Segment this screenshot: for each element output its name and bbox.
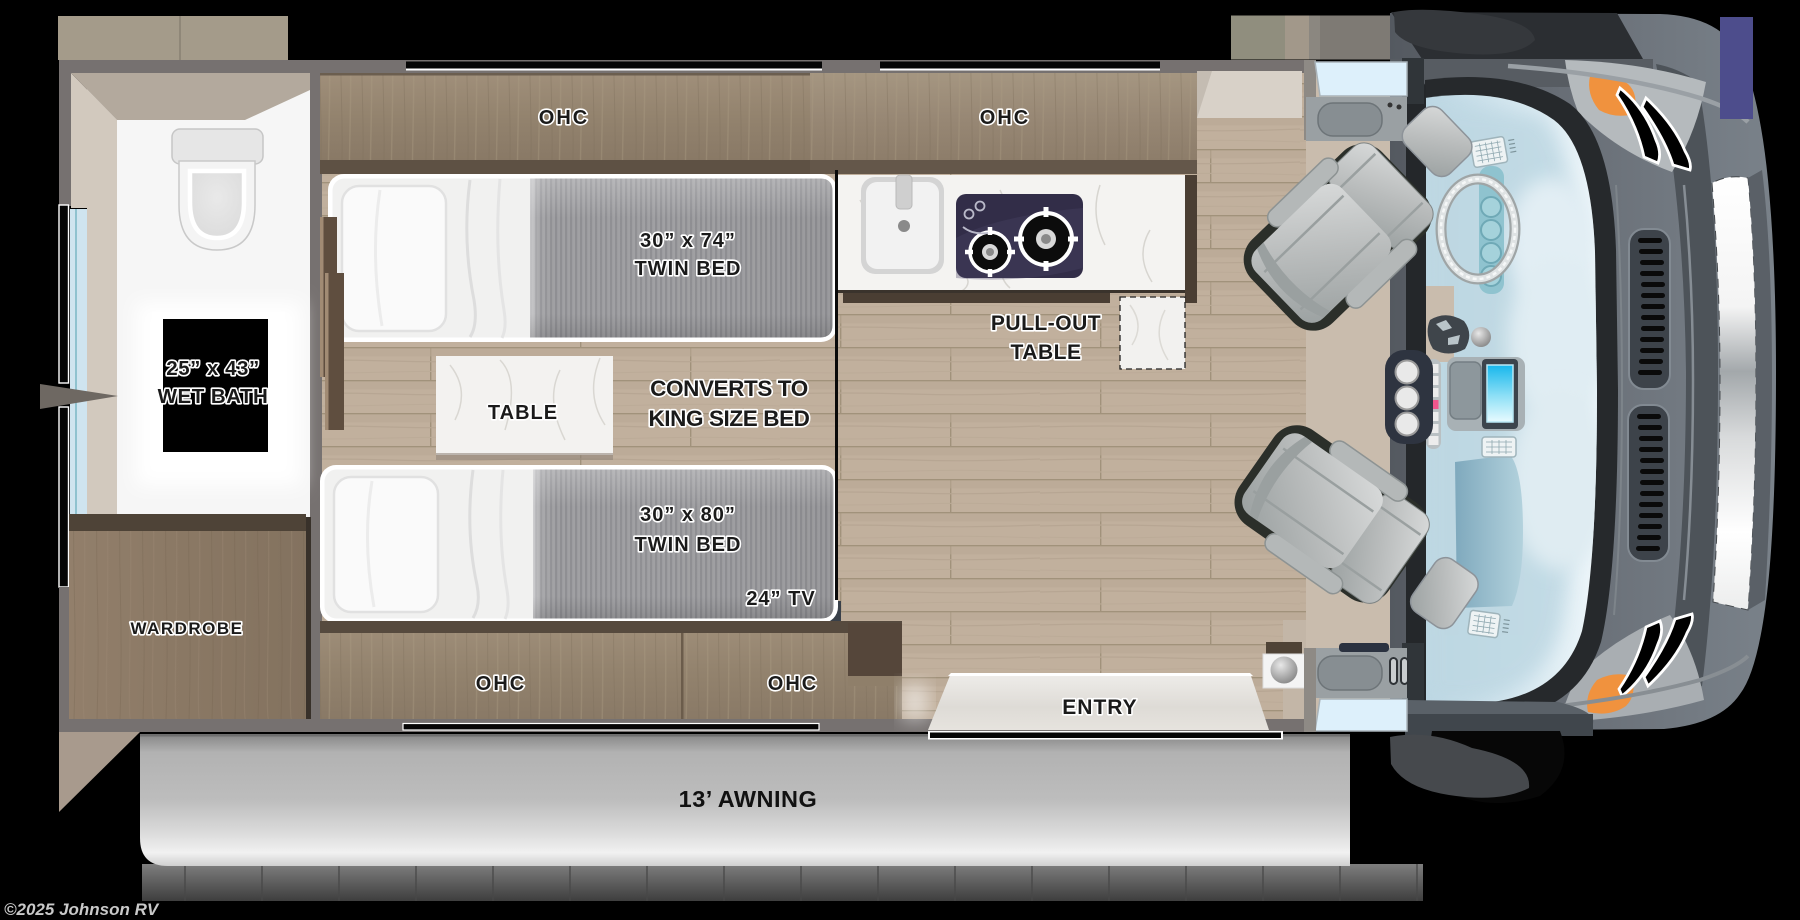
svg-text:OHC: OHC — [980, 107, 1030, 129]
svg-text:TWIN BED: TWIN BED — [635, 534, 742, 556]
svg-text:WARDROBE: WARDROBE — [130, 619, 243, 638]
svg-text:WET BATH: WET BATH — [158, 385, 269, 408]
svg-text:TWIN BED: TWIN BED — [635, 258, 742, 280]
svg-text:30” x 80”: 30” x 80” — [640, 504, 736, 526]
svg-text:30” x 74”: 30” x 74” — [640, 230, 736, 252]
svg-text:OHC: OHC — [476, 673, 526, 695]
svg-text:KING SIZE BED: KING SIZE BED — [648, 406, 809, 431]
svg-text:OHC: OHC — [539, 107, 589, 129]
svg-text:ENTRY: ENTRY — [1062, 696, 1137, 719]
svg-text:24” TV: 24” TV — [746, 588, 815, 610]
svg-text:TABLE: TABLE — [1011, 341, 1082, 364]
svg-text:25” x 43”: 25” x 43” — [166, 357, 259, 380]
svg-text:©2025 Johnson RV: ©2025 Johnson RV — [4, 900, 160, 919]
svg-text:13’ AWNING: 13’ AWNING — [679, 786, 818, 812]
svg-text:PULL-OUT: PULL-OUT — [991, 312, 1101, 335]
svg-text:CONVERTS TO: CONVERTS TO — [650, 376, 808, 401]
svg-text:TABLE: TABLE — [488, 402, 558, 424]
svg-text:OHC: OHC — [768, 673, 818, 695]
